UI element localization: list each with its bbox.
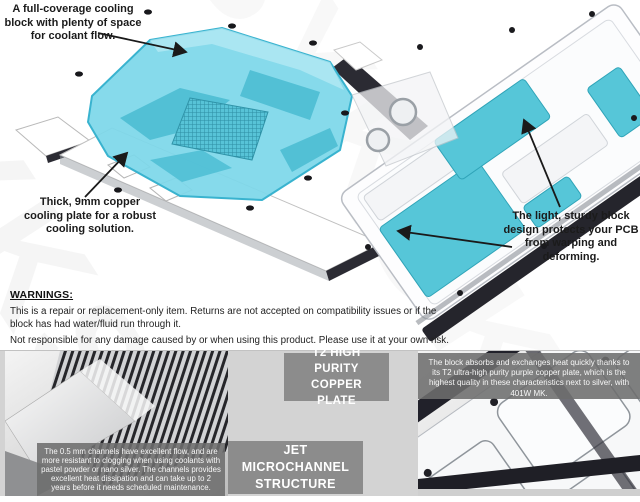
warnings-section: WARNINGS: This is a repair or replacemen…	[10, 289, 452, 352]
microchannel-label: JET MICROCHANNEL STRUCTURE	[228, 441, 363, 494]
copper-plate-photo: The block absorbs and exchanges heat qui…	[418, 351, 640, 497]
warnings-line-2: Not responsible for any damage caused by…	[10, 335, 452, 348]
copper-plate-description: The block absorbs and exchanges heat qui…	[418, 353, 640, 399]
microchannel-description: The 0.5 mm channels have excellent flow,…	[37, 443, 225, 497]
microchannel-photo: The 0.5 mm channels have excellent flow,…	[5, 351, 228, 497]
copper-plate-label: T2 HIGH PURITY COPPER PLATE	[284, 353, 389, 401]
bottom-margin	[0, 496, 640, 502]
feature-strip: The 0.5 mm channels have excellent flow,…	[0, 350, 640, 497]
callout-copper-plate: Thick, 9mm copper cooling plate for a ro…	[20, 196, 160, 237]
warnings-line-1: This is a repair or replacement-only ite…	[10, 306, 452, 331]
warnings-heading: WARNINGS:	[10, 289, 452, 301]
callout-full-coverage: A full-coverage cooling block with plent…	[2, 3, 144, 44]
product-infographic: BYKSKI.US BYKSKI.US	[0, 0, 640, 502]
full-cover-block-exploded	[16, 9, 428, 281]
callout-pcb-protection: The light, sturdy block design protects …	[502, 210, 640, 264]
